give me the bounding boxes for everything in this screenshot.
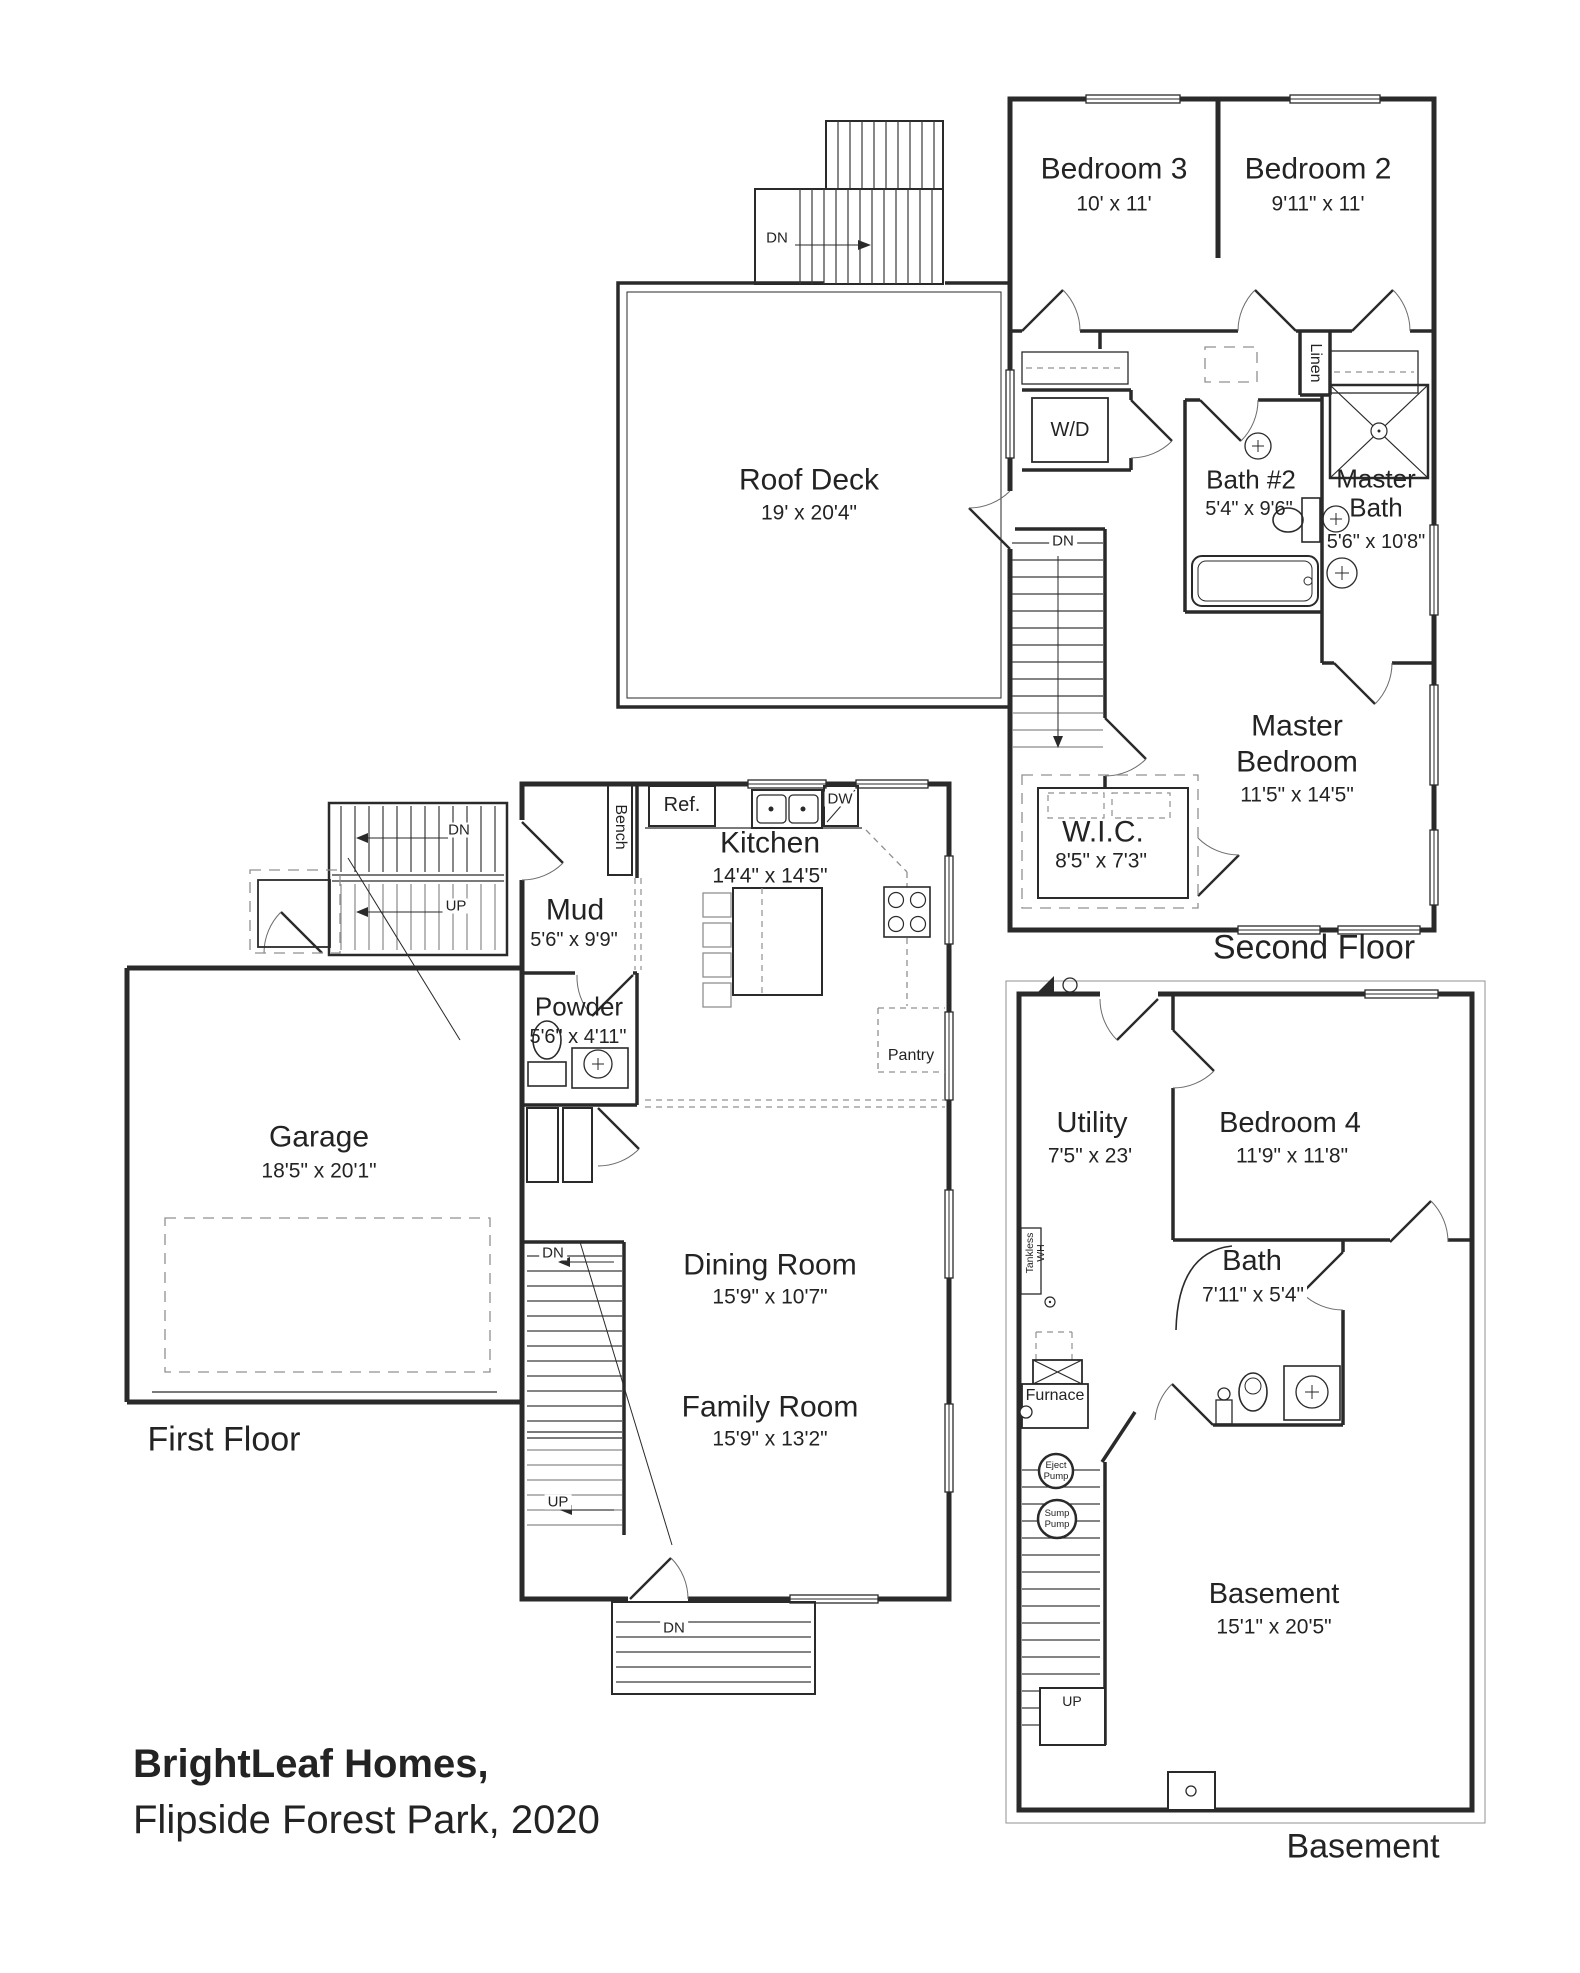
sheet-title-line1: BrightLeaf Homes, xyxy=(133,1742,489,1787)
bedroom2-dims: 9'11" x 11' xyxy=(1272,192,1365,215)
interior-stairs-up-label: UP xyxy=(545,1495,572,1510)
powder-dims: 5'6" x 4'11" xyxy=(529,1026,626,1048)
entry-stairs-dn-label: DN xyxy=(445,823,473,838)
powder-name: Powder xyxy=(535,993,623,1022)
utility-dims: 7'5" x 23' xyxy=(1048,1144,1132,1167)
basement-stairs-up-label: UP xyxy=(1059,1694,1084,1708)
garage-details xyxy=(152,1218,497,1392)
dining-name: Dining Room xyxy=(683,1249,856,1282)
basement-room-name: Basement xyxy=(1209,1579,1340,1611)
bath2-name: Bath #2 xyxy=(1206,466,1296,495)
basement-room-dims: 15'1" x 20'5" xyxy=(1216,1615,1331,1638)
garage-dims: 18'5" x 20'1" xyxy=(261,1159,376,1182)
sheet-title-line2: Flipside Forest Park, 2020 xyxy=(133,1798,600,1843)
pantry-label: Pantry xyxy=(885,1048,937,1064)
washer-dryer-label: W/D xyxy=(1051,419,1090,441)
interior-stairs-dn-label: DN xyxy=(539,1246,567,1261)
basement-bath-name: Bath xyxy=(1222,1246,1282,1278)
bedroom2-name: Bedroom 2 xyxy=(1245,153,1392,186)
utility-name: Utility xyxy=(1057,1108,1128,1140)
kitchen-name: Kitchen xyxy=(720,827,820,860)
basement-entry-marks xyxy=(1038,976,1077,992)
roof-stairs-dn-label: DN xyxy=(763,231,791,246)
master-bedroom-name-line2: Bedroom xyxy=(1236,746,1358,779)
second-stairs-dn-label: DN xyxy=(1049,534,1077,549)
second-floor-stairs xyxy=(1012,543,1103,748)
dining-closets xyxy=(527,1108,592,1182)
second-floor-label: Second Floor xyxy=(1213,929,1415,966)
support-column xyxy=(1168,1772,1215,1810)
garage-name: Garage xyxy=(269,1121,369,1154)
bath2-dims: 5'4" x 9'6" xyxy=(1205,498,1292,520)
roof-deck-name: Roof Deck xyxy=(739,464,879,497)
roof-stairs xyxy=(755,121,943,284)
master-bath-dims: 5'6" x 10'8" xyxy=(1327,531,1426,553)
kitchen-dims: 14'4" x 14'5" xyxy=(712,864,827,887)
eject-pump-label-line2: Pump xyxy=(1044,1472,1069,1482)
bedroom4-name: Bedroom 4 xyxy=(1219,1108,1361,1140)
master-bath-name-line1: Master xyxy=(1336,465,1415,494)
front-stoop xyxy=(612,1602,815,1694)
master-bedroom-name-line1: Master xyxy=(1251,710,1343,743)
master-bath-name-line2: Bath xyxy=(1349,494,1403,523)
wic-name: W.I.C. xyxy=(1062,816,1144,849)
mud-name: Mud xyxy=(546,894,604,927)
first-floor-plan xyxy=(127,780,953,1694)
bedroom3-dims: 10' x 11' xyxy=(1076,192,1151,215)
roof-deck-plan xyxy=(618,121,1010,707)
dining-dims: 15'9" x 10'7" xyxy=(712,1285,827,1308)
sump-pump-label-line1: Sump xyxy=(1045,1509,1070,1519)
floor-plan-sheet: Bedroom 3 10' x 11' Bedroom 2 9'11" x 11… xyxy=(0,0,1580,1973)
furnace-label: Furnace xyxy=(1026,1387,1085,1405)
tankless-wh-label-line2: WH xyxy=(1036,1244,1048,1262)
entry-stairs xyxy=(250,803,507,1040)
bedroom3-name: Bedroom 3 xyxy=(1041,153,1188,186)
mud-dims: 5'6" x 9'9" xyxy=(530,929,617,951)
first-floor-label: First Floor xyxy=(148,1421,301,1458)
basement-doors xyxy=(1100,999,1448,1425)
basement-floor-label: Basement xyxy=(1286,1828,1439,1865)
linen-label: Linen xyxy=(1306,343,1324,382)
floor-plan-drawing xyxy=(0,0,1580,1973)
family-dims: 15'9" x 13'2" xyxy=(712,1427,827,1450)
entry-stairs-up-label: UP xyxy=(443,899,470,914)
wic-dims: 8'5" x 7'3" xyxy=(1055,849,1147,872)
family-name: Family Room xyxy=(682,1391,859,1424)
bedroom4-dims: 11'9" x 11'8" xyxy=(1236,1144,1348,1167)
basement-bath-dims: 7'11" x 5'4" xyxy=(1199,1285,1307,1306)
eject-pump-label-line1: Eject xyxy=(1045,1461,1066,1471)
stoop-dn-label: DN xyxy=(660,1621,688,1636)
master-bedroom-dims: 11'5" x 14'5" xyxy=(1240,783,1354,806)
sump-pump-label-line2: Pump xyxy=(1045,1520,1070,1530)
bench-label: Bench xyxy=(611,804,629,849)
dishwasher-label: DW xyxy=(825,792,856,807)
refrigerator-label: Ref. xyxy=(664,794,701,816)
roof-deck-dims: 19' x 20'4" xyxy=(761,501,857,524)
